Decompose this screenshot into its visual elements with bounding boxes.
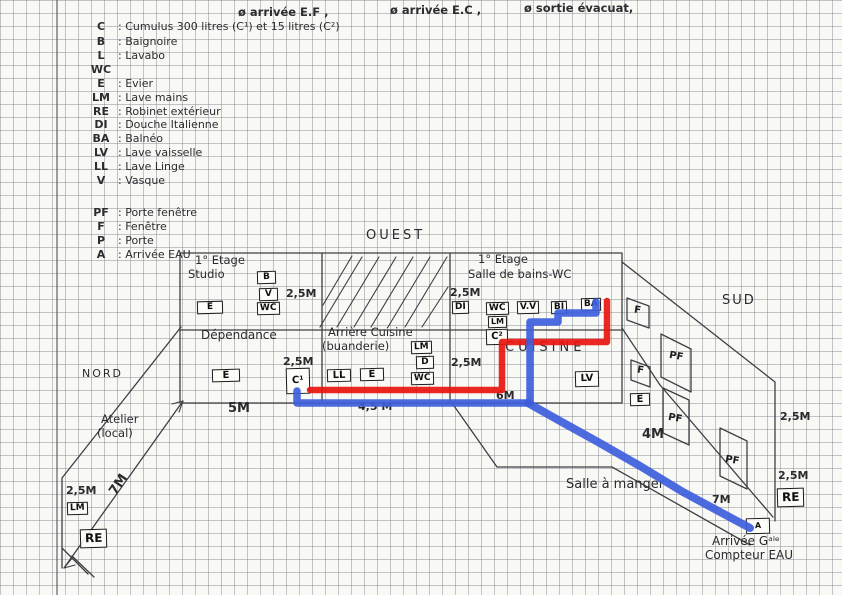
dim-c1-height: 2,5M (283, 356, 313, 368)
dim-atelier-height: 2,5M (66, 485, 96, 497)
fixture-box-cumulus-c2: C² (486, 329, 508, 346)
fixture-box-bi: BI (551, 301, 568, 314)
dim-arriere-width: 4,5 M (358, 401, 392, 413)
legend-item-pf: PF: Porte fenêtre (86, 206, 197, 219)
fixture-box-robinet-ext-nord: RE (80, 529, 108, 549)
orientation-south: SUD (722, 294, 756, 308)
fixture-box-balneo: BA (581, 298, 601, 312)
legend-item-lv: LV: Lave vaisselle (86, 146, 202, 159)
fixture-box-douche-italienne: DI (452, 301, 469, 314)
header-arrivee-ec: ø arrivée E.C , (390, 3, 481, 17)
fixture-box-wc-bains: WC (486, 302, 509, 316)
legend-item-l: L: Lavabo (86, 49, 165, 62)
legend-item-e: E: Evier (86, 77, 153, 90)
fixture-box-wc-studio: WC (257, 302, 280, 316)
orientation-west: OUEST (366, 229, 425, 243)
dim-wall-right-b: 2,5M (778, 470, 808, 482)
dining-room-wall (452, 403, 750, 545)
fixture-box-douche: D (416, 356, 434, 369)
fixture-box-vasques: V.V (517, 301, 540, 315)
arrival-label-line1: Arrivée Gᵃˡᵉ (712, 535, 780, 548)
fixture-box-vasque-studio: V (259, 288, 278, 301)
bath-label: Salle de bains-WC (468, 268, 571, 280)
fixture-box-evier-studio: E (197, 301, 223, 315)
fixture-box-lave-vaisselle: LV (575, 371, 599, 388)
fixture-box-e-wall: E (630, 393, 650, 407)
arrival-label-line2: Compteur EAU (705, 549, 793, 562)
window-f1-label: F (633, 306, 641, 317)
bath-floor-label: 1° Etage (478, 253, 528, 265)
fixture-box-lave-mains-atelier: LM (67, 502, 88, 516)
studio-label: Studio (188, 268, 225, 280)
dim-wall-right-a: 2,5M (780, 411, 810, 423)
dim-studio-height: 2,5M (286, 288, 316, 300)
legend-item-a: A: Arrivée EAU (86, 248, 191, 261)
dependance-label: Dépendance (201, 329, 277, 342)
legend-item-lm: LM: Lave mains (86, 91, 188, 104)
fixture-box-lave-mains-buanderie: LM (411, 341, 432, 355)
fixture-box-evier-dependance: E (212, 369, 240, 383)
legend-item-ba: BA: Balnéo (86, 132, 163, 145)
fixture-box-cumulus-c1: C¹ (286, 368, 310, 395)
legend-item-re: RE: Robinet extérieur (86, 105, 221, 118)
window-pf3-label: PF (724, 455, 740, 468)
graph-paper-sketch: ø arrivée E.F , ø arrivée E.C , ø sortie… (0, 0, 842, 595)
window-pf2-label: PF (667, 413, 683, 426)
buanderie-label: (buanderie) (322, 340, 389, 352)
legend-item-b: B: Baignoire (86, 35, 177, 48)
window-f2-label: F (636, 366, 644, 377)
salle-a-manger-label: Salle à manger (566, 478, 664, 492)
legend-item-f: F: Fenêtre (86, 220, 167, 233)
atelier-local-label: (local) (97, 427, 133, 439)
orientation-north: NORD (82, 368, 123, 380)
legend-item-v: V: Vasque (86, 174, 165, 187)
header-arrivee-ef: ø arrivée E.F , (238, 5, 329, 19)
arriere-cuisine-label: Arrière Cuisine (328, 326, 413, 338)
dim-salle-length: 7M (712, 494, 731, 506)
legend-item-c: C: Cumulus 300 litres (C¹) et 15 litres … (86, 20, 340, 33)
fixture-box-wc-buanderie: WC (411, 372, 434, 386)
legend-item-p: P: Porte (86, 234, 154, 247)
legend-item-di: DI: Douche Italienne (86, 118, 219, 131)
atelier-label: Atelier (101, 413, 138, 425)
dim-douche-height: 2,5M (451, 357, 481, 369)
fixture-box-lave-mains-bains: LM (488, 316, 507, 328)
header-sortie-evac: ø sortie évacuat, (524, 1, 633, 15)
fixture-box-arrivee-generale: A (746, 518, 770, 535)
legend-item-wc: WC (86, 63, 118, 76)
studio-floor-label: 1° Etage (195, 254, 245, 266)
window-pf1-label: PF (668, 351, 684, 364)
dim-bath-height: 2,5M (450, 287, 480, 299)
fixture-box-lave-linge: LL (327, 369, 351, 383)
roof-hatching (320, 256, 448, 327)
fixture-box-robinet-ext-sud: RE (777, 488, 805, 508)
dim-cuisine-width: 6M (496, 390, 515, 402)
fixture-box-baignoire: B (257, 271, 276, 284)
dim-dependance-width: 5M (228, 402, 250, 416)
fixture-box-evier-buanderie: E (360, 368, 384, 382)
dim-salle-width: 4M (642, 428, 664, 442)
cuisine-label: CUISINE (505, 341, 585, 355)
legend-item-ll: LL: Lave Linge (86, 160, 185, 173)
